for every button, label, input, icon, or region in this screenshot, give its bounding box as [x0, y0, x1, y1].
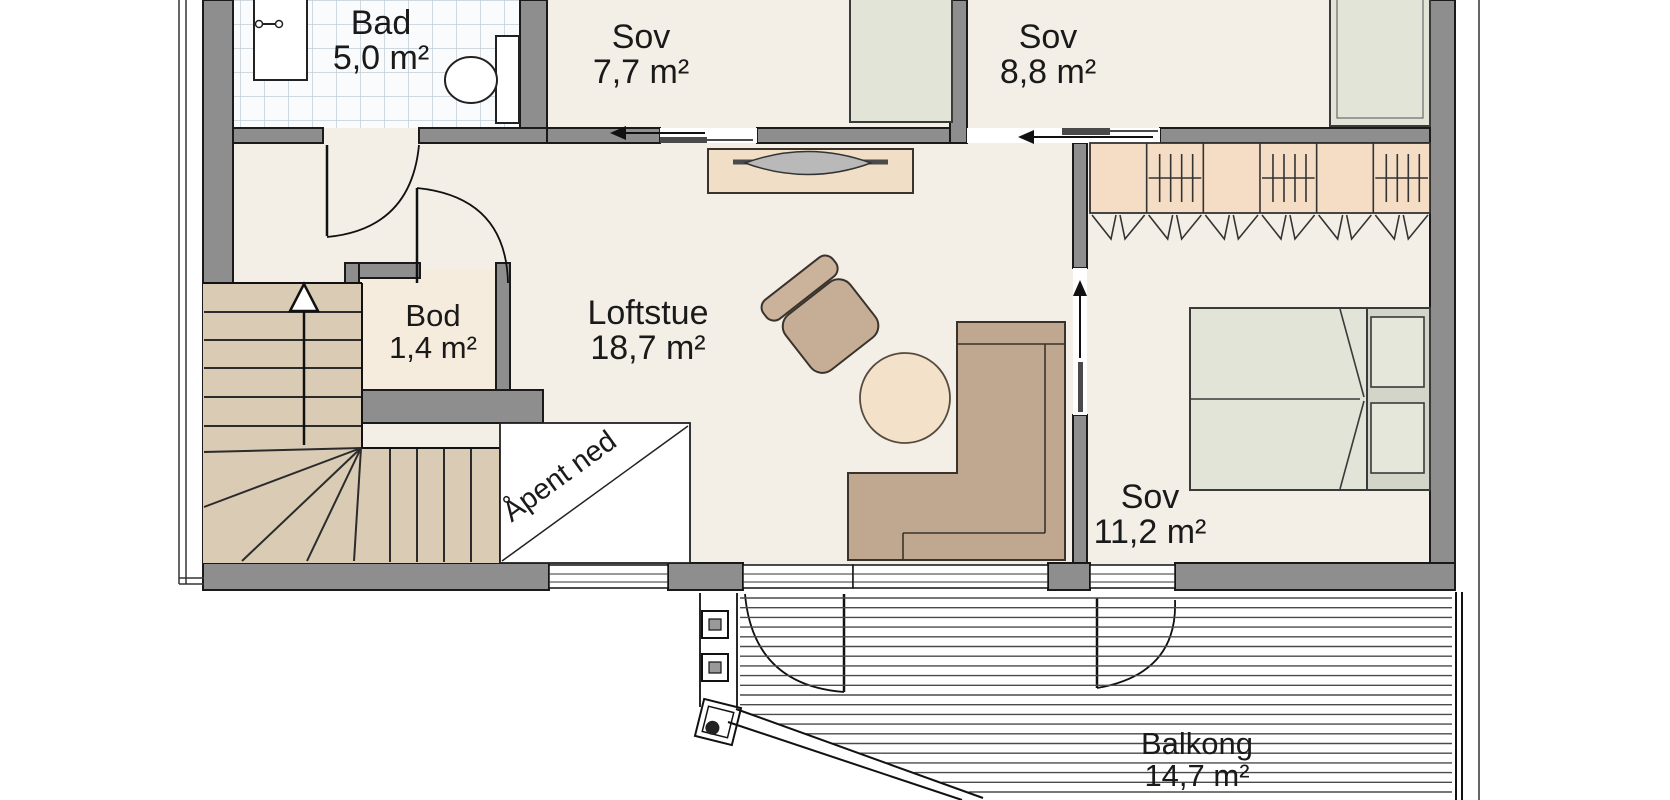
door-swing-balcony-1: [745, 594, 844, 692]
floor-plan-drawing: [0, 0, 1670, 800]
room-label-bod: Bod 1,4 m²: [389, 300, 477, 364]
bed: [1330, 0, 1430, 126]
room-label-bad: Bad 5,0 m²: [333, 6, 429, 76]
room-label-loftstue: Loftstue 18,7 m²: [588, 296, 709, 366]
wall-segment: [1073, 415, 1087, 563]
room-label-sov-3: Sov 11,2 m²: [1094, 480, 1207, 550]
wall-segment: [520, 0, 547, 143]
door-swing-balcony-2: [1097, 598, 1175, 688]
wall-segment: [203, 563, 549, 590]
window: [853, 565, 1048, 588]
wall-segment: [668, 563, 743, 590]
wall-segment: [419, 128, 547, 143]
room-label-balkong: Balkong 14,7 m²: [1141, 728, 1253, 792]
wall-segment: [547, 128, 660, 143]
pillow: [1371, 403, 1424, 473]
balcony-door-sill: [1090, 565, 1175, 588]
pillow: [1371, 317, 1424, 387]
corner-post: [695, 699, 741, 745]
wall-segment: [1048, 563, 1090, 590]
balcony-deck: [695, 592, 1462, 800]
bed: [850, 0, 952, 122]
sliding-door-sov2: [967, 128, 1160, 144]
wall-segment: [345, 390, 543, 423]
sliding-door-sov3: [1073, 268, 1087, 415]
railing: [728, 709, 983, 800]
wall-segment: [496, 263, 510, 405]
wall-segment: [1160, 128, 1430, 143]
wall-segment: [1073, 143, 1087, 268]
dresser: [708, 149, 913, 193]
wall-segment: [233, 128, 323, 143]
room-label-sov-2: Sov 8,8 m²: [1000, 20, 1096, 90]
wall-segment: [757, 128, 950, 143]
balcony-post: [702, 611, 728, 638]
wall-segment: [1175, 563, 1455, 590]
wall-segment: [1430, 0, 1455, 590]
room-label-sov-1: Sov 7,7 m²: [593, 20, 689, 90]
floor-plan: Bad 5,0 m² Sov 7,7 m² Sov 8,8 m² Bod 1,4…: [0, 0, 1670, 800]
balcony-post: [702, 654, 728, 681]
double-bed: [1190, 308, 1430, 490]
window: [549, 565, 668, 588]
balcony-door-sill: [743, 565, 853, 588]
bathtub-fixture: [254, 0, 307, 80]
coffee-table: [860, 353, 950, 443]
